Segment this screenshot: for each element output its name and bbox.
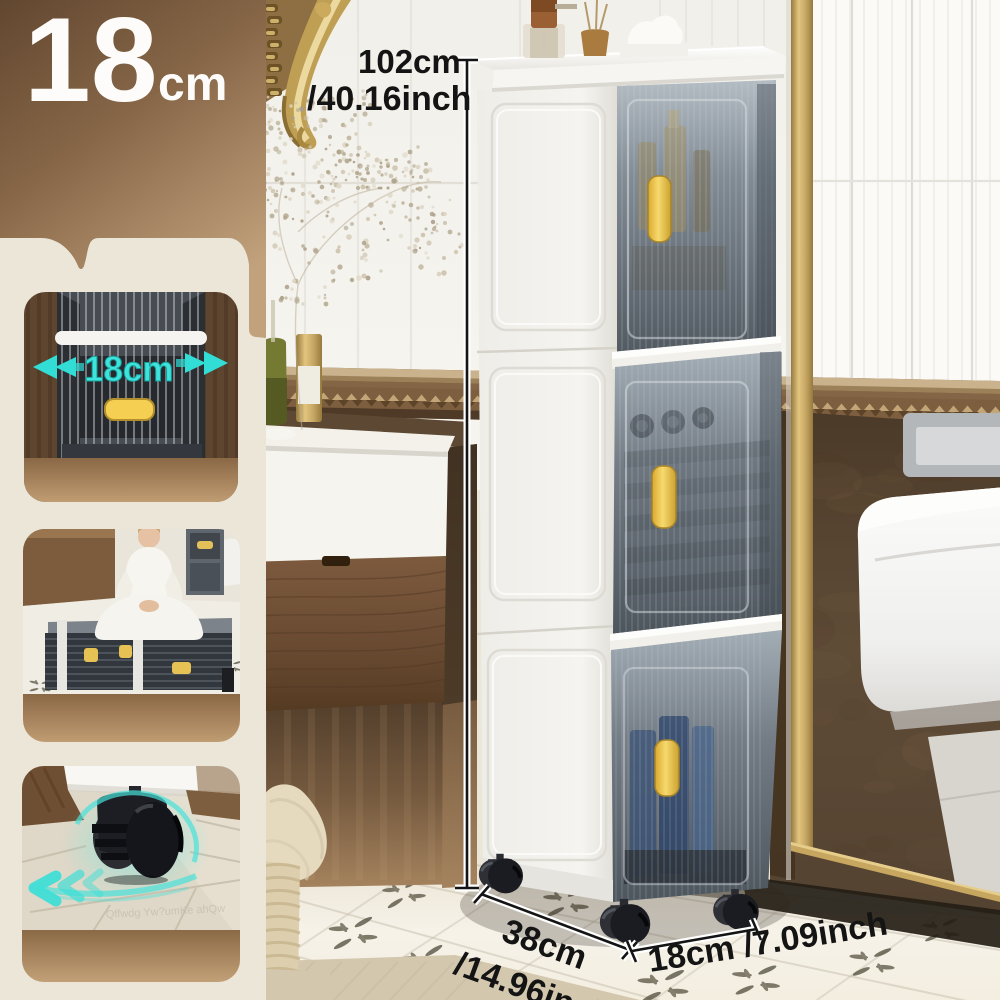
svg-text:18cm: 18cm xyxy=(84,350,174,389)
svg-text:/40.16inch: /40.16inch xyxy=(307,80,471,118)
svg-text:18: 18 xyxy=(24,0,157,127)
svg-text:cm: cm xyxy=(158,58,227,111)
svg-text:102cm: 102cm xyxy=(358,43,461,80)
